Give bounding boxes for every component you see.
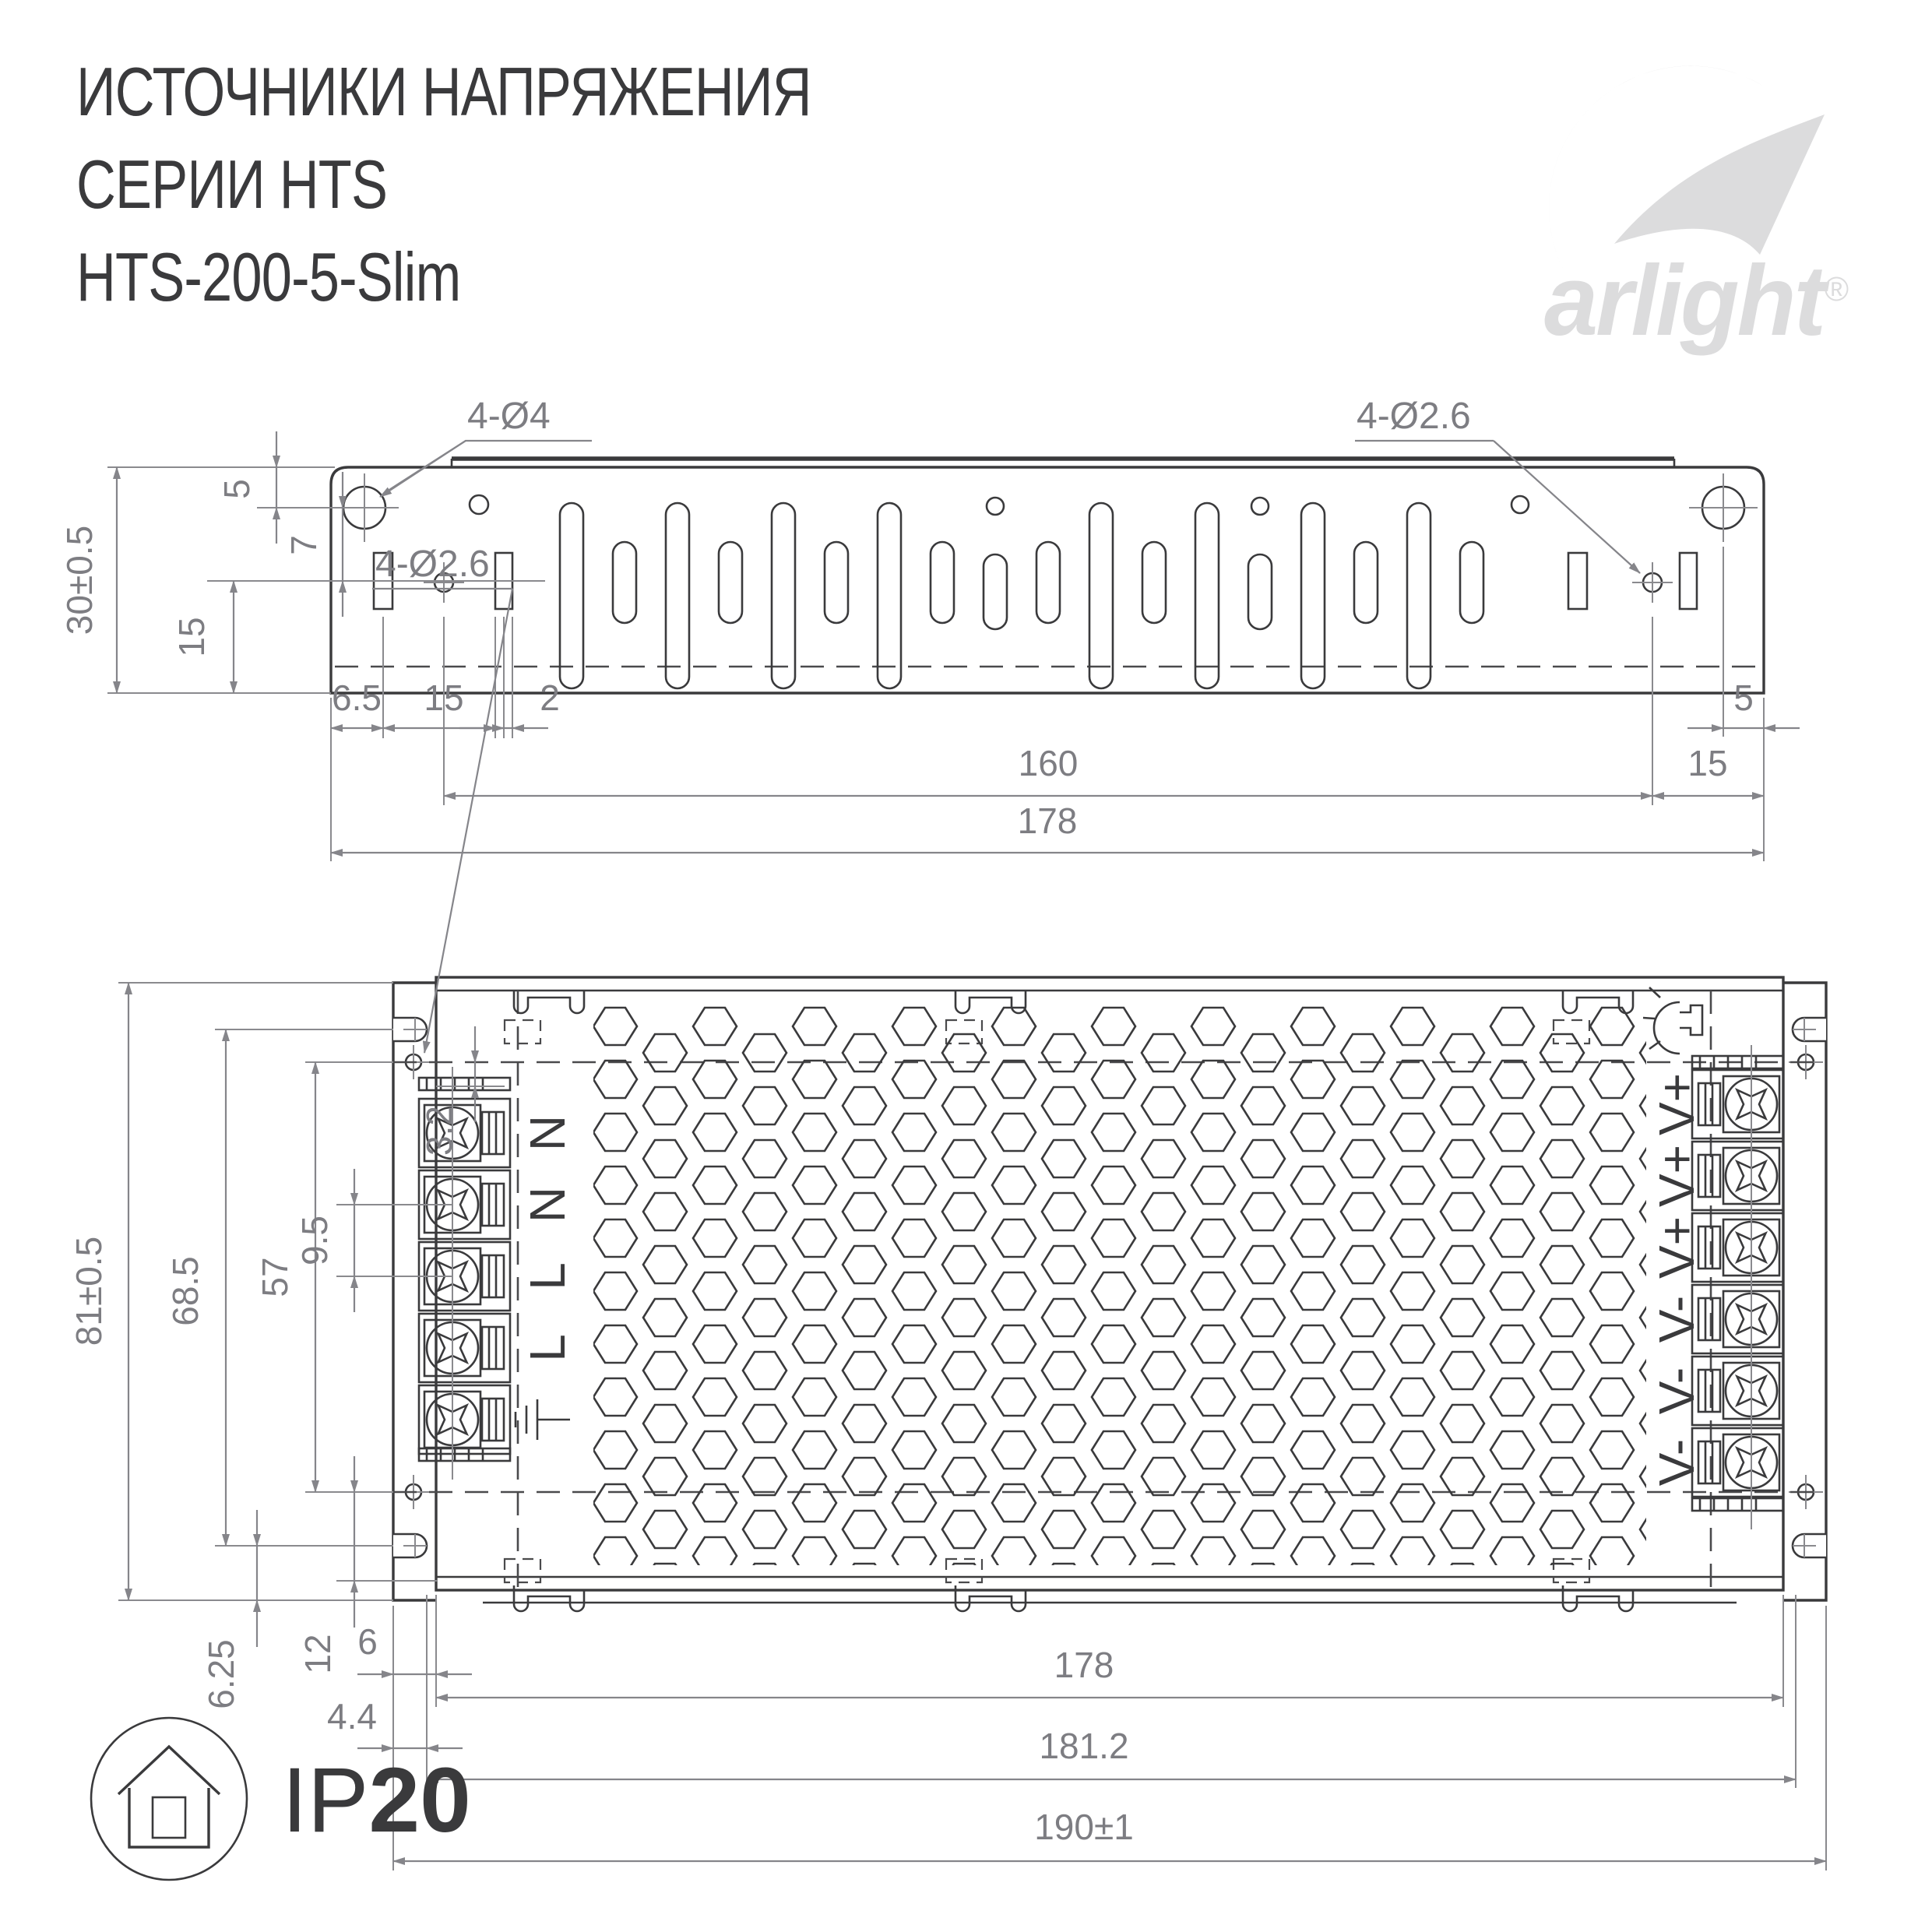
side-dim-slot-width: 2 — [540, 677, 560, 718]
terminal-label-vplus3: V+ — [1649, 1216, 1705, 1279]
top-dim-hole-span: 57 — [255, 1257, 295, 1297]
side-dim-mount-span: 160 — [1019, 743, 1079, 783]
top-dim-height: 81±0.5 — [69, 1237, 109, 1346]
top-dim-notch-to-bottom: 6.25 — [201, 1639, 241, 1709]
side-view-dimension-lines — [107, 431, 1800, 861]
terminal-label-vminus3: V- — [1649, 1439, 1705, 1486]
terminal-label-n1: N — [519, 1115, 575, 1151]
top-dim-side-offset: 6 — [357, 1621, 378, 1662]
ip-rating-prefix: IP — [282, 1749, 369, 1852]
top-dim-case-length: 178 — [1054, 1645, 1114, 1685]
side-small-hole-callout: 4-Ø2.6 — [1357, 396, 1471, 437]
top-dim-hole-offset: 3.2 — [419, 1106, 459, 1156]
top-dim-notch-span: 68.5 — [165, 1256, 206, 1326]
ip-rating-value: 20 — [369, 1749, 471, 1852]
side-dim-hole-to-slot: 7 — [283, 535, 324, 555]
side-dim-right-hole-margin: 5 — [1733, 677, 1754, 718]
terminal-label-l1: L — [519, 1262, 575, 1290]
top-dim-overall-length: 190±1 — [1034, 1807, 1134, 1847]
terminal-label-l2: L — [519, 1334, 575, 1362]
side-dim-length: 178 — [1018, 801, 1078, 841]
terminal-label-vplus1: V+ — [1649, 1073, 1705, 1135]
vent-hex-pattern — [593, 1008, 1684, 1654]
side-large-hole-callout: 4-Ø4 — [467, 396, 551, 437]
technical-drawing: 4-Ø4 4-Ø2.6 30±0.5 5 7 15 6.5 15 2 5 160… — [0, 0, 1932, 1932]
top-dim-flange-offset: 4.4 — [327, 1696, 377, 1737]
side-dim-slot-to-bottom: 15 — [171, 617, 212, 656]
top-dim-hole-to-bottom: 12 — [297, 1634, 338, 1673]
side-dim-slot-pitch: 15 — [424, 677, 463, 718]
top-dim-terminal-pitch: 9.5 — [294, 1216, 335, 1265]
ip-rating: IP20 — [282, 1747, 471, 1853]
datasheet-page: ИСТОЧНИКИ НАПРЯЖЕНИЯ СЕРИИ HTS HTS-200-5… — [0, 0, 1932, 1932]
top-view-geometry — [393, 977, 1826, 1611]
side-dim-left-margin: 6.5 — [332, 677, 382, 718]
side-dim-top-offset: 5 — [216, 479, 257, 499]
side-dim-height: 30±0.5 — [59, 526, 100, 635]
terminal-label-vplus2: V+ — [1649, 1145, 1705, 1207]
side-dim-right-pitch: 15 — [1687, 743, 1727, 783]
side-view-geometry — [330, 459, 1764, 693]
ip-badge-icon — [91, 1718, 247, 1880]
top-small-hole-callout: 4-Ø2.6 — [375, 544, 490, 585]
terminal-label-vminus2: V- — [1649, 1367, 1705, 1414]
terminal-label-vminus1: V- — [1649, 1296, 1705, 1343]
terminal-label-n2: N — [519, 1187, 575, 1223]
top-dim-cover-length: 181.2 — [1039, 1726, 1128, 1766]
